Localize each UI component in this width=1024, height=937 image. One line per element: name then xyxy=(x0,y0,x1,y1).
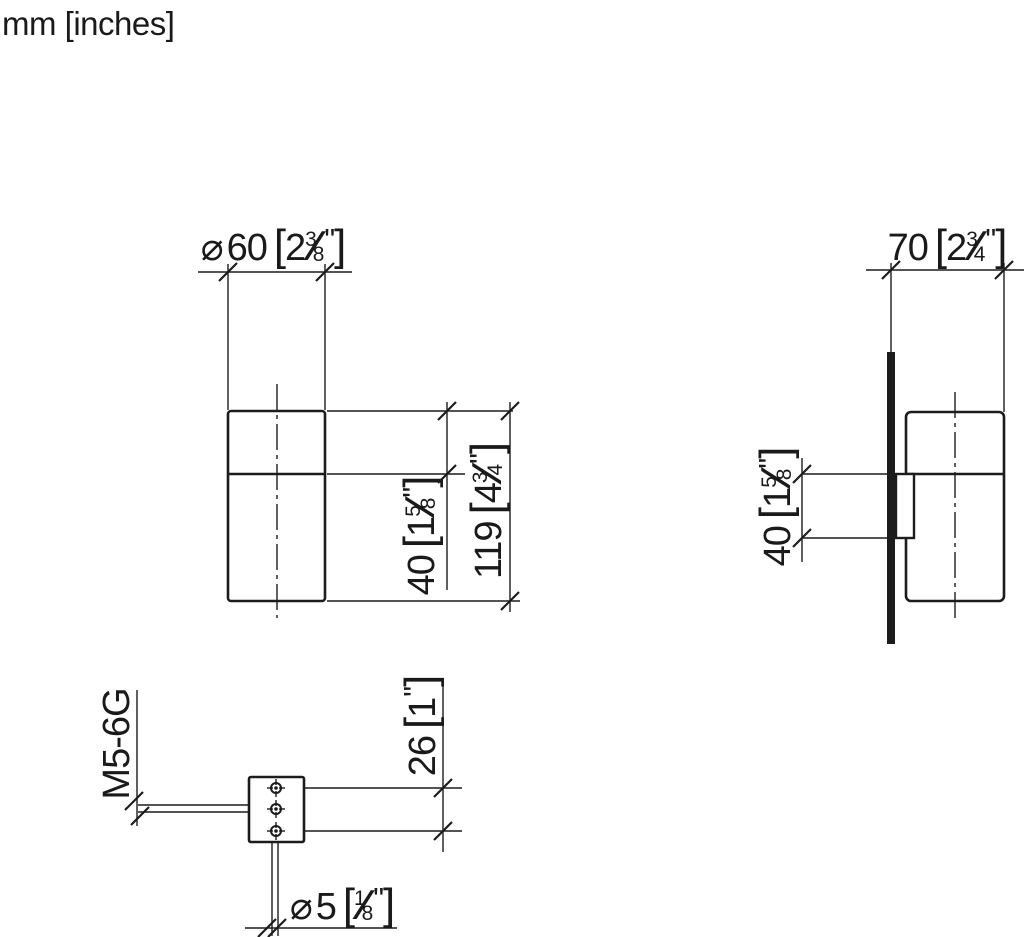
dim-label-height-119: 119[43∕4"] xyxy=(465,443,509,579)
thread-label-m5-6g: M5-6G xyxy=(98,688,136,799)
dim-label-depth-70: 70[23∕4"] xyxy=(888,224,1007,268)
dim-mm: 40 xyxy=(401,555,443,595)
dim-inch-whole: 1 xyxy=(402,698,444,718)
dim-mm: 5 xyxy=(316,886,336,928)
units-note: mm [inches] xyxy=(2,6,174,42)
dim-inch-whole: 2 xyxy=(285,227,305,269)
dim-mm: 70 xyxy=(888,227,928,269)
mounting-wall-bar xyxy=(887,352,895,644)
dim-mm: 26 xyxy=(402,736,444,776)
dim-mm: 40 xyxy=(757,526,799,566)
dim-mm: 119 xyxy=(468,521,510,579)
dim-label-diameter-60: ⌀60[23∕8"] xyxy=(201,224,346,268)
dim-label-height-40-side: 40[15∕8"] xyxy=(754,448,798,567)
dim-label-diameter-5: ⌀5[1∕8"] xyxy=(290,883,394,927)
dim-mm: 60 xyxy=(227,227,267,269)
dim-inch-whole: 1 xyxy=(401,517,443,537)
dim-inch-whole: 1 xyxy=(757,488,799,508)
diameter-icon: ⌀ xyxy=(290,886,312,928)
dim-inch-whole: 4 xyxy=(468,483,510,503)
dim-inch-whole: 2 xyxy=(946,227,966,269)
dim-label-height-40-front: 40[15∕8"] xyxy=(398,477,442,596)
wall-adapter-side xyxy=(896,474,914,538)
drawing-canvas xyxy=(0,0,1024,937)
side-view xyxy=(793,261,1024,644)
dimension-drawing: mm [inches] ⌀60[23∕8"] 70[23∕4"] 40[15∕8… xyxy=(0,0,1024,937)
dim-label-hole-spacing-26: 26[1"] xyxy=(399,676,443,777)
diameter-icon: ⌀ xyxy=(201,227,223,269)
